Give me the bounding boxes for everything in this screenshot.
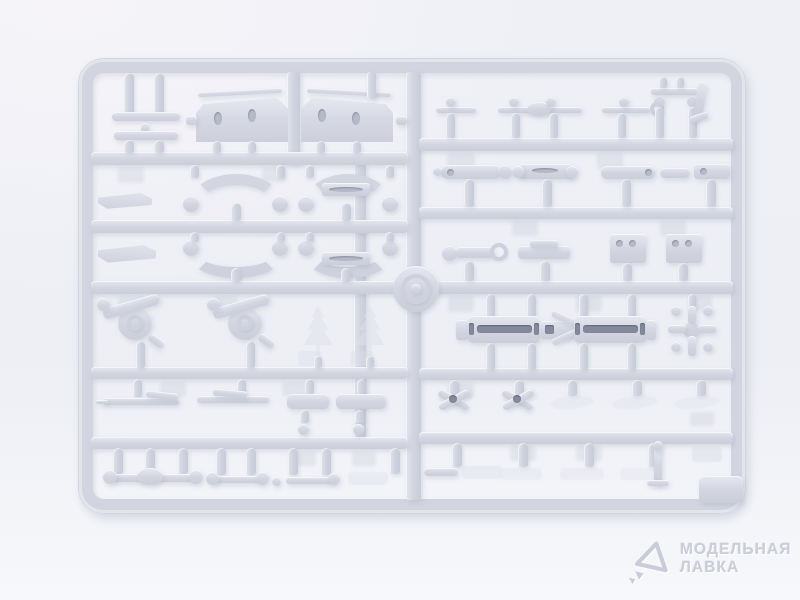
part-stem-foot [647, 480, 669, 486]
arc-end [298, 196, 314, 212]
axle-end [328, 473, 340, 485]
knob [703, 306, 713, 316]
rifle-muzzle [96, 400, 108, 404]
post [231, 203, 241, 221]
injection-gate-dot [411, 284, 421, 294]
post [314, 356, 322, 368]
post [385, 232, 394, 242]
post [305, 232, 314, 242]
arc-plate-slot [329, 256, 363, 261]
knob [298, 424, 309, 435]
post [632, 380, 642, 396]
post [464, 261, 474, 281]
part-hole [685, 240, 692, 247]
cast-shadow [352, 452, 376, 466]
post [627, 343, 636, 370]
part-link [456, 247, 494, 258]
arc-end [183, 240, 199, 256]
hull-hole [248, 109, 256, 122]
post [136, 341, 145, 368]
part-corner-tab [699, 476, 743, 503]
post [390, 448, 400, 474]
part-hole [616, 240, 623, 247]
post [579, 294, 588, 318]
post [231, 268, 241, 282]
sprue [0, 0, 800, 600]
pulley-hub [237, 315, 253, 331]
part-axle [286, 477, 332, 484]
arc-end [382, 196, 398, 212]
hull-hole [352, 112, 360, 125]
rod-nub [546, 97, 556, 107]
part-hole [447, 169, 454, 176]
post [385, 165, 394, 178]
post [676, 77, 684, 88]
barrel-tick [534, 323, 539, 335]
arc-end [382, 240, 398, 256]
post [190, 165, 199, 178]
knob [654, 96, 665, 107]
post [621, 179, 631, 207]
post [540, 261, 550, 281]
post [154, 140, 164, 153]
post [527, 294, 536, 318]
hull-hole [214, 112, 222, 125]
ghost-part [500, 468, 542, 480]
runner-right-1 [419, 138, 733, 151]
post [124, 73, 134, 114]
knob [671, 306, 681, 316]
part-hole [700, 168, 707, 175]
ghost-part [348, 472, 388, 485]
post [288, 448, 298, 475]
post [316, 141, 325, 153]
part-bracket-bar [112, 112, 180, 121]
part-hole [629, 240, 636, 247]
axle-boss [137, 468, 163, 485]
part-hull-tab [186, 116, 197, 125]
axle-end [256, 472, 269, 485]
post [113, 448, 123, 474]
post [617, 113, 626, 138]
post [567, 380, 577, 396]
barrel-slot [477, 325, 532, 333]
post [542, 179, 552, 207]
part-axle [212, 476, 260, 483]
runner-right-5 [419, 432, 733, 444]
post [511, 113, 520, 138]
arc-end [272, 196, 288, 212]
sprue-photo: МОДЕЛЬНАЯ ЛАВКА [0, 0, 800, 600]
barrel-tick [545, 325, 554, 334]
barrel-cap [646, 320, 656, 340]
post [190, 232, 199, 242]
post [706, 179, 716, 207]
cylinder-end [512, 166, 524, 178]
part-block [610, 234, 646, 263]
watermark-line2: ЛАВКА [680, 559, 792, 577]
cross-stub [698, 325, 716, 333]
axle-end [206, 472, 219, 485]
knob [653, 441, 663, 451]
post [549, 113, 558, 138]
knob [353, 424, 364, 435]
post [486, 343, 495, 370]
post [355, 410, 364, 423]
part-stub-bar [424, 468, 458, 476]
post [696, 380, 706, 396]
post [246, 341, 255, 368]
ghost-part [692, 446, 722, 462]
post [659, 77, 667, 88]
post [464, 179, 474, 207]
pulley-arm-tip [207, 298, 220, 311]
part-cylinder [660, 168, 690, 178]
cylinder-slot [532, 168, 558, 173]
rod-nub [619, 97, 629, 107]
rod-nub [509, 97, 519, 107]
post [352, 141, 361, 153]
post [584, 443, 594, 467]
post [446, 113, 455, 138]
post [655, 107, 664, 138]
post [452, 443, 462, 467]
ghost-part [462, 466, 502, 479]
watermark: МОДЕЛЬНАЯ ЛАВКА [627, 536, 792, 586]
propeller-hub [513, 395, 521, 403]
pulley-arm-tip [97, 298, 110, 311]
part-block [666, 234, 702, 263]
cast-shadow [448, 296, 474, 312]
runner-hull-gate [287, 72, 300, 164]
cast-shadow [512, 221, 538, 236]
model-shop-logo-icon [627, 538, 673, 586]
runner-left-4 [91, 367, 408, 379]
post [276, 232, 285, 242]
post [276, 165, 285, 178]
part-hull-tab [396, 116, 407, 125]
post [178, 448, 188, 474]
knob [703, 342, 713, 352]
post [518, 443, 528, 467]
part-cylinder [336, 394, 386, 409]
post [579, 343, 588, 370]
post [341, 268, 351, 282]
runner-right-4 [419, 368, 733, 380]
cross-stub [668, 325, 686, 333]
post [133, 379, 142, 397]
post [341, 203, 351, 221]
post [357, 379, 366, 394]
knob [272, 477, 281, 486]
post [212, 141, 221, 153]
cast-shadow [690, 412, 714, 426]
rod-nub [446, 97, 456, 107]
post [366, 356, 374, 368]
post [216, 448, 226, 475]
link-plate [530, 240, 558, 248]
part-disc [442, 246, 457, 261]
barrel-tick [469, 323, 474, 335]
ghost-part [560, 468, 604, 480]
part-hull-right [301, 98, 393, 142]
post [627, 294, 636, 318]
cylinder-end [566, 166, 578, 178]
pulley-hub [127, 315, 143, 331]
post [321, 448, 331, 475]
part-bracket-bar [114, 131, 178, 140]
barrel-cap [456, 320, 468, 340]
post [678, 263, 688, 281]
post [486, 294, 495, 318]
part-hull-cylinder [367, 72, 376, 99]
arc-end [183, 196, 199, 212]
cross-stub [688, 336, 696, 356]
cross-stub [688, 306, 696, 324]
post [305, 379, 314, 394]
arc-end [298, 240, 314, 256]
watermark-line1: МОДЕЛЬНАЯ [680, 541, 792, 559]
part-rod [436, 107, 476, 113]
propeller-hub [449, 395, 457, 403]
barrel-slot [583, 325, 638, 333]
post [527, 343, 536, 370]
post [154, 73, 164, 114]
part-hole [645, 169, 652, 176]
arc-plate-slot [329, 187, 363, 192]
part-rod [602, 107, 650, 113]
axle-end [189, 470, 203, 484]
runner-left-1 [91, 152, 408, 165]
post [622, 263, 632, 281]
watermark-text: МОДЕЛЬНАЯ ЛАВКА [680, 541, 792, 577]
barrel-tick [640, 323, 645, 335]
cylinder-end [498, 165, 512, 179]
runner-right-2 [419, 207, 733, 219]
part-ring [490, 243, 508, 261]
hull-hole [318, 109, 326, 122]
part-cylinder [287, 394, 329, 409]
arc-end [272, 240, 288, 256]
knob [671, 342, 681, 352]
post [124, 140, 134, 153]
part-hull-left [196, 98, 288, 142]
post [247, 141, 256, 153]
part-hole [672, 240, 679, 247]
post [300, 410, 309, 423]
axle-end [103, 470, 117, 484]
rod-nub [433, 167, 442, 176]
part-corner-bar [651, 88, 697, 95]
post [305, 165, 314, 178]
cast-shadow [118, 167, 144, 183]
post [246, 448, 256, 475]
barrel-tick [575, 323, 580, 335]
